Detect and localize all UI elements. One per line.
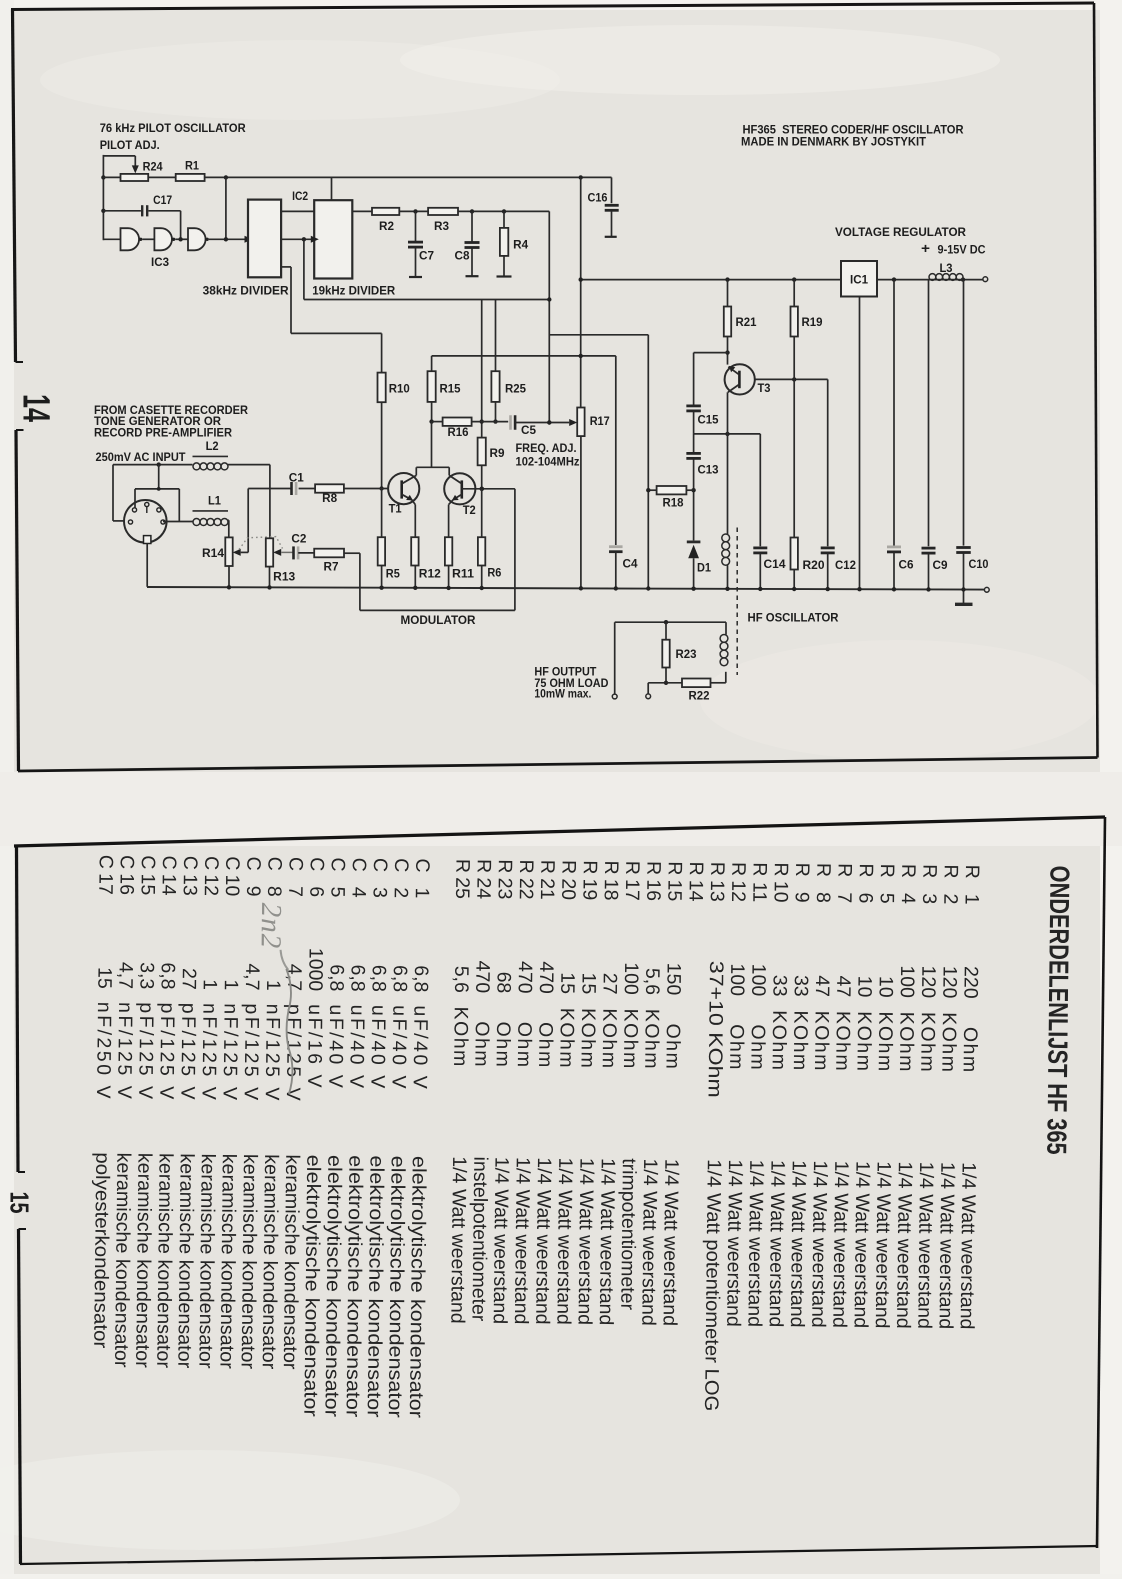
svg-text:C12: C12 <box>835 559 856 572</box>
svg-text:MODULATOR: MODULATOR <box>401 613 476 627</box>
svg-text:R22: R22 <box>689 689 710 702</box>
svg-text:R8: R8 <box>322 492 338 505</box>
svg-text:C17: C17 <box>153 194 172 207</box>
svg-text:R9: R9 <box>490 447 506 460</box>
svg-text:R21: R21 <box>736 316 758 329</box>
svg-text:HF OSCILLATOR: HF OSCILLATOR <box>748 611 839 625</box>
svg-text:R14: R14 <box>202 547 225 560</box>
svg-text:102-104MHz: 102-104MHz <box>516 454 580 468</box>
svg-text:R1: R1 <box>185 160 200 173</box>
svg-text:T2: T2 <box>463 504 476 517</box>
svg-text:C5: C5 <box>521 424 537 437</box>
svg-text:IC2: IC2 <box>292 190 308 203</box>
svg-text:R23: R23 <box>676 648 698 661</box>
svg-text:38kHz DIVIDER: 38kHz DIVIDER <box>203 284 289 298</box>
svg-text:2n2: 2n2 <box>255 903 288 950</box>
svg-text:R15: R15 <box>440 383 462 396</box>
svg-text:PILOT ADJ.: PILOT ADJ. <box>100 138 160 152</box>
svg-text:14: 14 <box>15 394 57 422</box>
svg-text:L2: L2 <box>206 440 219 453</box>
svg-text:T3: T3 <box>758 382 772 395</box>
svg-text:R24: R24 <box>143 160 164 173</box>
svg-text:C16: C16 <box>588 192 609 205</box>
svg-text:R20: R20 <box>803 559 825 572</box>
svg-text:R14: R14 <box>685 861 707 901</box>
svg-text:L1: L1 <box>208 494 222 507</box>
svg-text:C10: C10 <box>969 558 989 571</box>
svg-text:10mW max.: 10mW max. <box>534 686 591 700</box>
svg-text:R7: R7 <box>324 561 339 574</box>
svg-text:R17: R17 <box>590 415 610 428</box>
svg-text:R2: R2 <box>379 220 394 233</box>
svg-text:C1: C1 <box>289 471 305 484</box>
svg-text:T1: T1 <box>389 503 403 516</box>
svg-text:R5: R5 <box>386 567 401 580</box>
svg-text:R12: R12 <box>419 567 441 580</box>
svg-text:250mV AC INPUT: 250mV AC INPUT <box>96 450 187 464</box>
svg-text:19kHz DIVIDER: 19kHz DIVIDER <box>312 284 395 298</box>
svg-text:15: 15 <box>5 1192 35 1214</box>
svg-text:76 kHz PILOT OSCILLATOR: 76 kHz PILOT OSCILLATOR <box>100 121 246 135</box>
svg-text:R11: R11 <box>452 567 475 580</box>
svg-text:+: + <box>921 241 930 256</box>
svg-text:C13: C13 <box>698 464 720 477</box>
svg-text:C2: C2 <box>291 533 306 546</box>
svg-text:R16: R16 <box>448 426 470 439</box>
svg-text:C14: C14 <box>764 558 787 571</box>
svg-text:IC3: IC3 <box>151 256 170 269</box>
svg-text:R19: R19 <box>802 316 824 329</box>
svg-text:FREQ. ADJ.: FREQ. ADJ. <box>516 441 577 455</box>
svg-text:C4: C4 <box>623 558 639 571</box>
svg-text:C15: C15 <box>698 414 720 427</box>
svg-text:R4: R4 <box>513 238 529 251</box>
svg-text:C6: C6 <box>899 559 915 572</box>
svg-text:ONDERDELENLIJST HF 365: ONDERDELENLIJST HF 365 <box>1041 865 1075 1154</box>
svg-text:R25: R25 <box>505 383 527 396</box>
svg-text:L3: L3 <box>940 262 954 275</box>
svg-text:9-15V DC: 9-15V DC <box>938 242 986 256</box>
svg-text:R10: R10 <box>389 383 410 396</box>
svg-text:C8: C8 <box>455 249 471 262</box>
svg-text:R18: R18 <box>663 497 685 510</box>
svg-text:VOLTAGE REGULATOR: VOLTAGE REGULATOR <box>835 225 966 239</box>
svg-text:C7: C7 <box>419 249 434 262</box>
svg-text:R13: R13 <box>273 570 296 583</box>
svg-text:MADE IN DENMARK BY JOSTYKIT: MADE IN DENMARK BY JOSTYKIT <box>741 134 926 148</box>
svg-text:R3: R3 <box>434 220 450 233</box>
svg-text:IC1: IC1 <box>850 274 869 287</box>
svg-text:R6: R6 <box>487 566 502 579</box>
svg-text:RECORD PRE-AMPLIFIER: RECORD PRE-AMPLIFIER <box>94 425 232 439</box>
svg-text:D1: D1 <box>697 562 712 575</box>
svg-text:C9: C9 <box>933 559 949 572</box>
